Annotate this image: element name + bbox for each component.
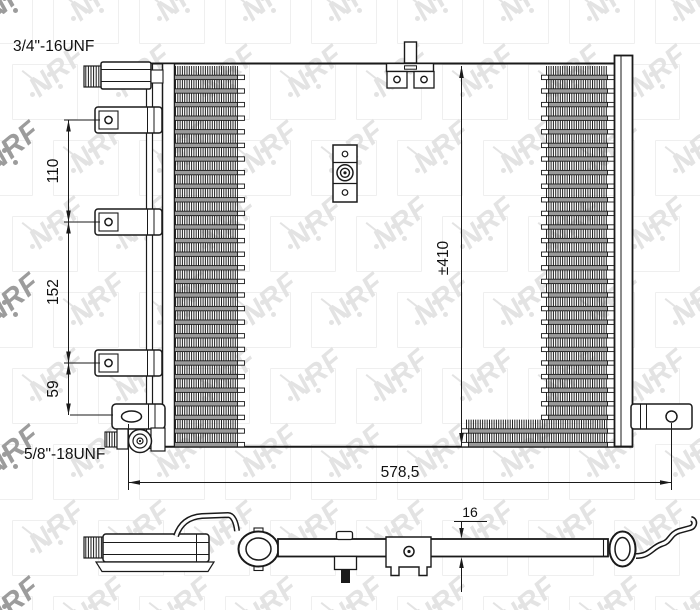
top-bracket-tab <box>405 42 417 63</box>
arrowhead <box>459 66 464 78</box>
mounting-bracket <box>95 107 162 133</box>
arrowhead <box>66 404 71 416</box>
condenser-technical-drawing-page: NRFNRFNRFNRFNRFNRFNRFNRFNRFNRFNRFNRFNRFN… <box>0 0 700 610</box>
profile-left-hook <box>176 515 237 536</box>
arrowhead <box>459 557 464 568</box>
technical-drawing: 110 152 59 ±410 578,5 3/4"-16UN <box>0 0 700 610</box>
center-fastening-plate <box>333 145 357 202</box>
dim-578-label: 578,5 <box>381 464 420 481</box>
left-header-tank <box>163 64 175 447</box>
thread-hatch <box>86 537 102 558</box>
top-mounting-bracket <box>387 42 435 88</box>
label-bottom-fitting-thread: 5/8"-18UNF <box>24 446 105 463</box>
label-top-fitting-thread: 3/4"-16UNF <box>13 38 94 55</box>
height-dimension: ±410 <box>435 66 464 445</box>
profile-core-bar <box>278 539 608 557</box>
bottom-left-assembly <box>105 404 165 453</box>
arrowhead <box>459 528 464 539</box>
dim-16-label: 16 <box>462 504 478 520</box>
bracket-slot <box>122 411 142 422</box>
top-fitting <box>84 62 163 89</box>
front-view <box>84 42 692 453</box>
arrowhead <box>66 211 71 223</box>
profile-fitting-body <box>103 534 209 562</box>
profile-drain-fitting <box>335 557 357 570</box>
arrowhead <box>66 120 71 132</box>
right-bracket-hole <box>666 411 677 422</box>
dim-152-label: 152 <box>45 279 62 305</box>
profile-drain-pin <box>342 570 350 583</box>
mounting-bracket <box>95 350 162 376</box>
bottom-profile-view: 16 <box>84 504 694 592</box>
mounting-bracket <box>95 209 162 235</box>
right-header-tank <box>615 56 633 447</box>
profile-right-hook <box>636 519 694 556</box>
profile-lower-plate <box>96 562 214 572</box>
arrowhead <box>66 363 71 375</box>
arrowhead <box>660 480 672 485</box>
arrowhead <box>66 222 71 234</box>
profile-top-tab <box>337 532 353 540</box>
arrowhead <box>66 352 71 364</box>
bottom-fitting-hex <box>117 429 128 449</box>
top-fitting-neck <box>151 70 163 83</box>
bottom-fitting-block <box>151 428 165 451</box>
dim-110-label: 110 <box>45 158 62 183</box>
right-mounting-bracket <box>631 404 692 429</box>
arrowhead <box>129 480 141 485</box>
core-fins-and-tubes <box>175 71 615 447</box>
dim-410-label: ±410 <box>435 240 452 275</box>
top-fitting-body <box>101 62 151 89</box>
dim-59-label: 59 <box>45 380 62 397</box>
thread-hatch <box>86 66 102 87</box>
